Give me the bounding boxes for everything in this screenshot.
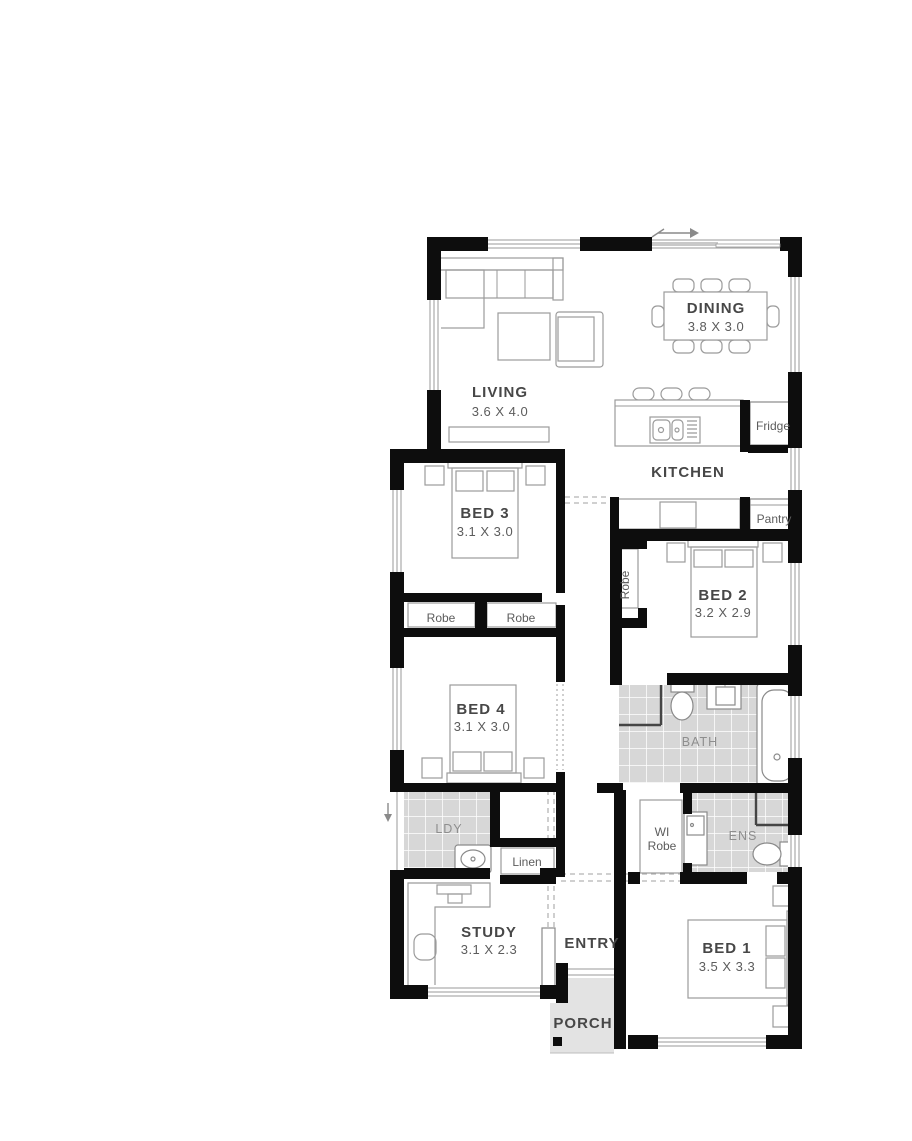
- kitchen-island: [615, 388, 743, 446]
- robe-right-label: Robe: [507, 611, 536, 625]
- coffee-table: [498, 313, 550, 360]
- window-dining-right: [788, 277, 802, 372]
- floor-plan-page: LIVING 3.6 X 4.0 DINING 3.8 X 3.0 KITCHE…: [0, 0, 912, 1141]
- bed1-dims: 3.5 X 3.3: [699, 959, 756, 974]
- linen-label: Linen: [512, 855, 541, 869]
- dining-label: DINING: [687, 300, 746, 317]
- bed2-dims: 3.2 X 2.9: [695, 605, 752, 620]
- ensuite-toilet: [753, 842, 792, 866]
- window-kitchen-right: [788, 448, 802, 490]
- study-label: STUDY: [461, 924, 517, 941]
- pantry-label: Pantry: [757, 512, 792, 526]
- study-monitor: [437, 885, 471, 894]
- bed2-label: BED 2: [698, 587, 747, 604]
- bed4-furniture: [422, 685, 544, 783]
- kitchen-bench: [617, 499, 740, 529]
- bath-label: BATH: [682, 735, 718, 749]
- window-ensuite-right: [788, 835, 802, 867]
- bed1-label: BED 1: [702, 940, 751, 957]
- study-dims: 3.1 X 2.3: [461, 942, 518, 957]
- wi-robe-label-line2: Robe: [648, 839, 677, 853]
- sliding-door-top: [652, 237, 780, 251]
- bath-vanity: [707, 682, 741, 709]
- bed3-dims: 3.1 X 3.0: [457, 524, 514, 539]
- laundry-door-left: [390, 792, 404, 870]
- living-label: LIVING: [472, 384, 528, 401]
- tv-unit: [449, 427, 549, 442]
- armchair: [556, 312, 603, 367]
- entry-label: ENTRY: [564, 935, 619, 952]
- study-door-leaf: [542, 928, 555, 986]
- living-dims: 3.6 X 4.0: [472, 404, 529, 419]
- ensuite-label: ENS: [729, 829, 758, 843]
- window-bath-right: [788, 696, 802, 758]
- windows-and-doors: [390, 237, 802, 1049]
- dining-dims: 3.8 X 3.0: [688, 319, 745, 334]
- wi-robe-label-line1: WI: [655, 825, 670, 839]
- study-chair: [414, 934, 436, 960]
- kitchen-label: KITCHEN: [651, 464, 725, 481]
- porch-post: [553, 1037, 562, 1046]
- floor-plan-drawing: LIVING 3.6 X 4.0 DINING 3.8 X 3.0 KITCHE…: [0, 0, 912, 1141]
- robe-left-label: Robe: [427, 611, 456, 625]
- ensuite-vanity: [684, 812, 707, 865]
- furniture: [408, 258, 798, 1027]
- bed3-label: BED 3: [460, 505, 509, 522]
- window-bed4-left: [390, 668, 404, 750]
- sofa: [440, 258, 563, 328]
- porch-label: PORCH: [553, 1015, 612, 1032]
- front-door-threshold: [568, 967, 614, 978]
- window-bed2-right: [788, 563, 802, 645]
- fridge-label: Fridge: [756, 419, 790, 433]
- bed2-robe-label: Robe: [618, 570, 632, 599]
- window-living-left: [427, 300, 441, 390]
- window-bed1-bottom: [658, 1035, 766, 1049]
- sliding-door-arrow: [652, 228, 699, 238]
- bath-toilet: [671, 682, 694, 720]
- bed4-dims: 3.1 X 3.0: [454, 719, 511, 734]
- window-bed3-left: [390, 490, 404, 572]
- laundry-label: LDY: [435, 822, 462, 836]
- window-living-top: [488, 237, 580, 251]
- walls: [390, 237, 802, 1049]
- window-study-bottom: [428, 985, 540, 999]
- bed4-label: BED 4: [456, 701, 505, 718]
